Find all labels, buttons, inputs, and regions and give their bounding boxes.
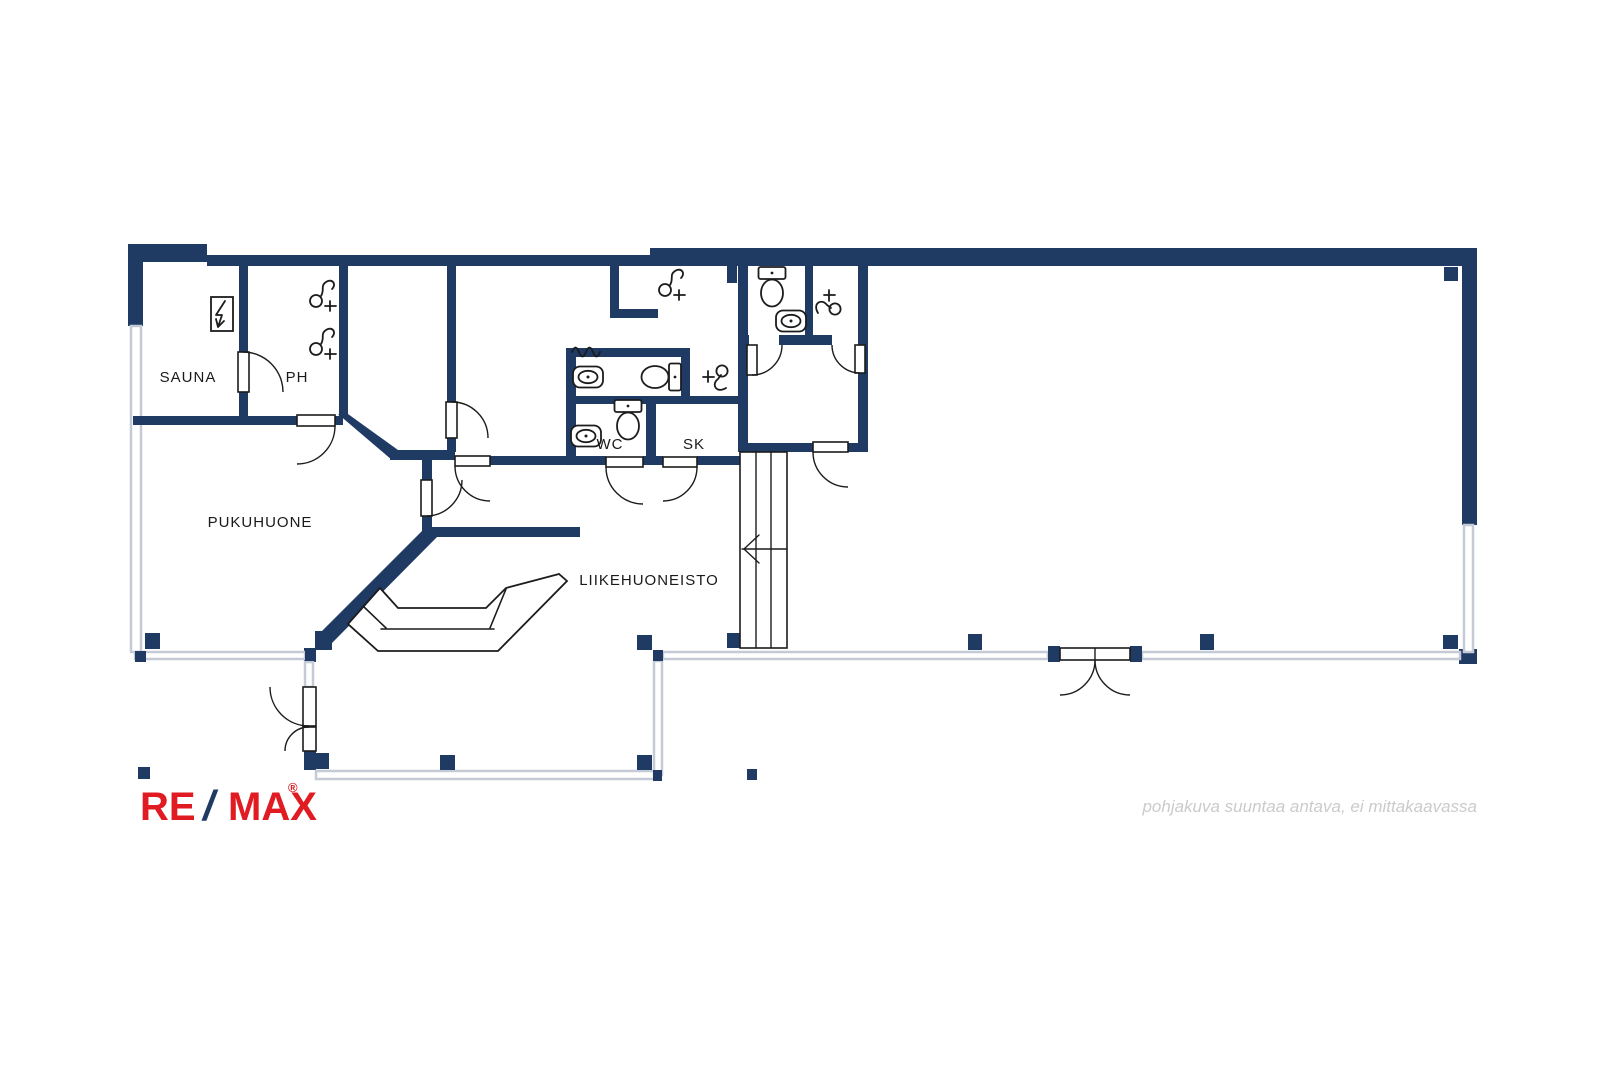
floor-plan-page: SAUNA PH PUKUHUONE WC SK LIIKEHUONEISTO …: [0, 0, 1600, 1067]
window-main-bottom-left: [663, 652, 1048, 659]
doors: [238, 345, 1142, 751]
washbasin-icon: [776, 311, 806, 332]
door-wc: [606, 457, 643, 467]
window-walls: [131, 326, 1473, 779]
door-porch-lower: [303, 727, 316, 751]
window-porch-bottom: [316, 771, 654, 779]
logo-re: RE: [140, 785, 196, 829]
room-label-pukuhuone: PUKUHUONE: [208, 514, 313, 531]
door-porch-upper: [303, 687, 316, 726]
logo-max: MAX: [228, 785, 317, 829]
faucet-icon: [703, 365, 728, 389]
window-pukuhuone-bottom: [135, 652, 305, 659]
remax-logo: RE / MAX ®: [140, 780, 317, 829]
room-label-sk: SK: [683, 436, 705, 453]
logo-slash: /: [201, 782, 219, 829]
door-washroom: [855, 345, 865, 373]
door-pukuhuone: [421, 480, 432, 516]
room-label-ph: PH: [286, 369, 309, 386]
room-label-wc: WC: [597, 436, 624, 453]
window-porch-left: [305, 662, 313, 687]
diagonal-wall-upper: [338, 414, 398, 460]
door-sk: [663, 457, 697, 467]
floor-plan-drawing: SAUNA PH PUKUHUONE WC SK LIIKEHUONEISTO …: [0, 0, 1600, 1067]
room-label-liikehuoneisto: LIIKEHUONEISTO: [579, 572, 719, 589]
door-room-a: [446, 402, 457, 438]
toilet-icon: [759, 267, 786, 307]
shower-icon: [310, 329, 336, 359]
door-ph: [297, 415, 335, 426]
window-porch-right: [654, 661, 662, 775]
shower-icon: [310, 281, 336, 311]
door-sauna: [238, 352, 249, 392]
washbasin-icon: [573, 367, 603, 388]
footer-disclaimer: pohjakuva suuntaa antava, ei mittakaavas…: [1141, 797, 1477, 816]
window-right: [1464, 525, 1473, 652]
toilet-icon: [642, 364, 682, 391]
door-room-b: [455, 456, 490, 466]
toilet-icon: [615, 400, 642, 440]
door-wc-top: [747, 345, 757, 375]
window-left: [131, 326, 141, 652]
staircase: [740, 452, 787, 648]
shower-icon: [659, 270, 685, 300]
room-label-sauna: SAUNA: [160, 369, 217, 386]
window-main-bottom-right: [1142, 652, 1460, 659]
door-hall: [813, 442, 848, 452]
sauna-stove-icon: [211, 297, 233, 331]
faucet-icon: [816, 290, 840, 315]
logo-registered-mark: ®: [288, 780, 298, 795]
